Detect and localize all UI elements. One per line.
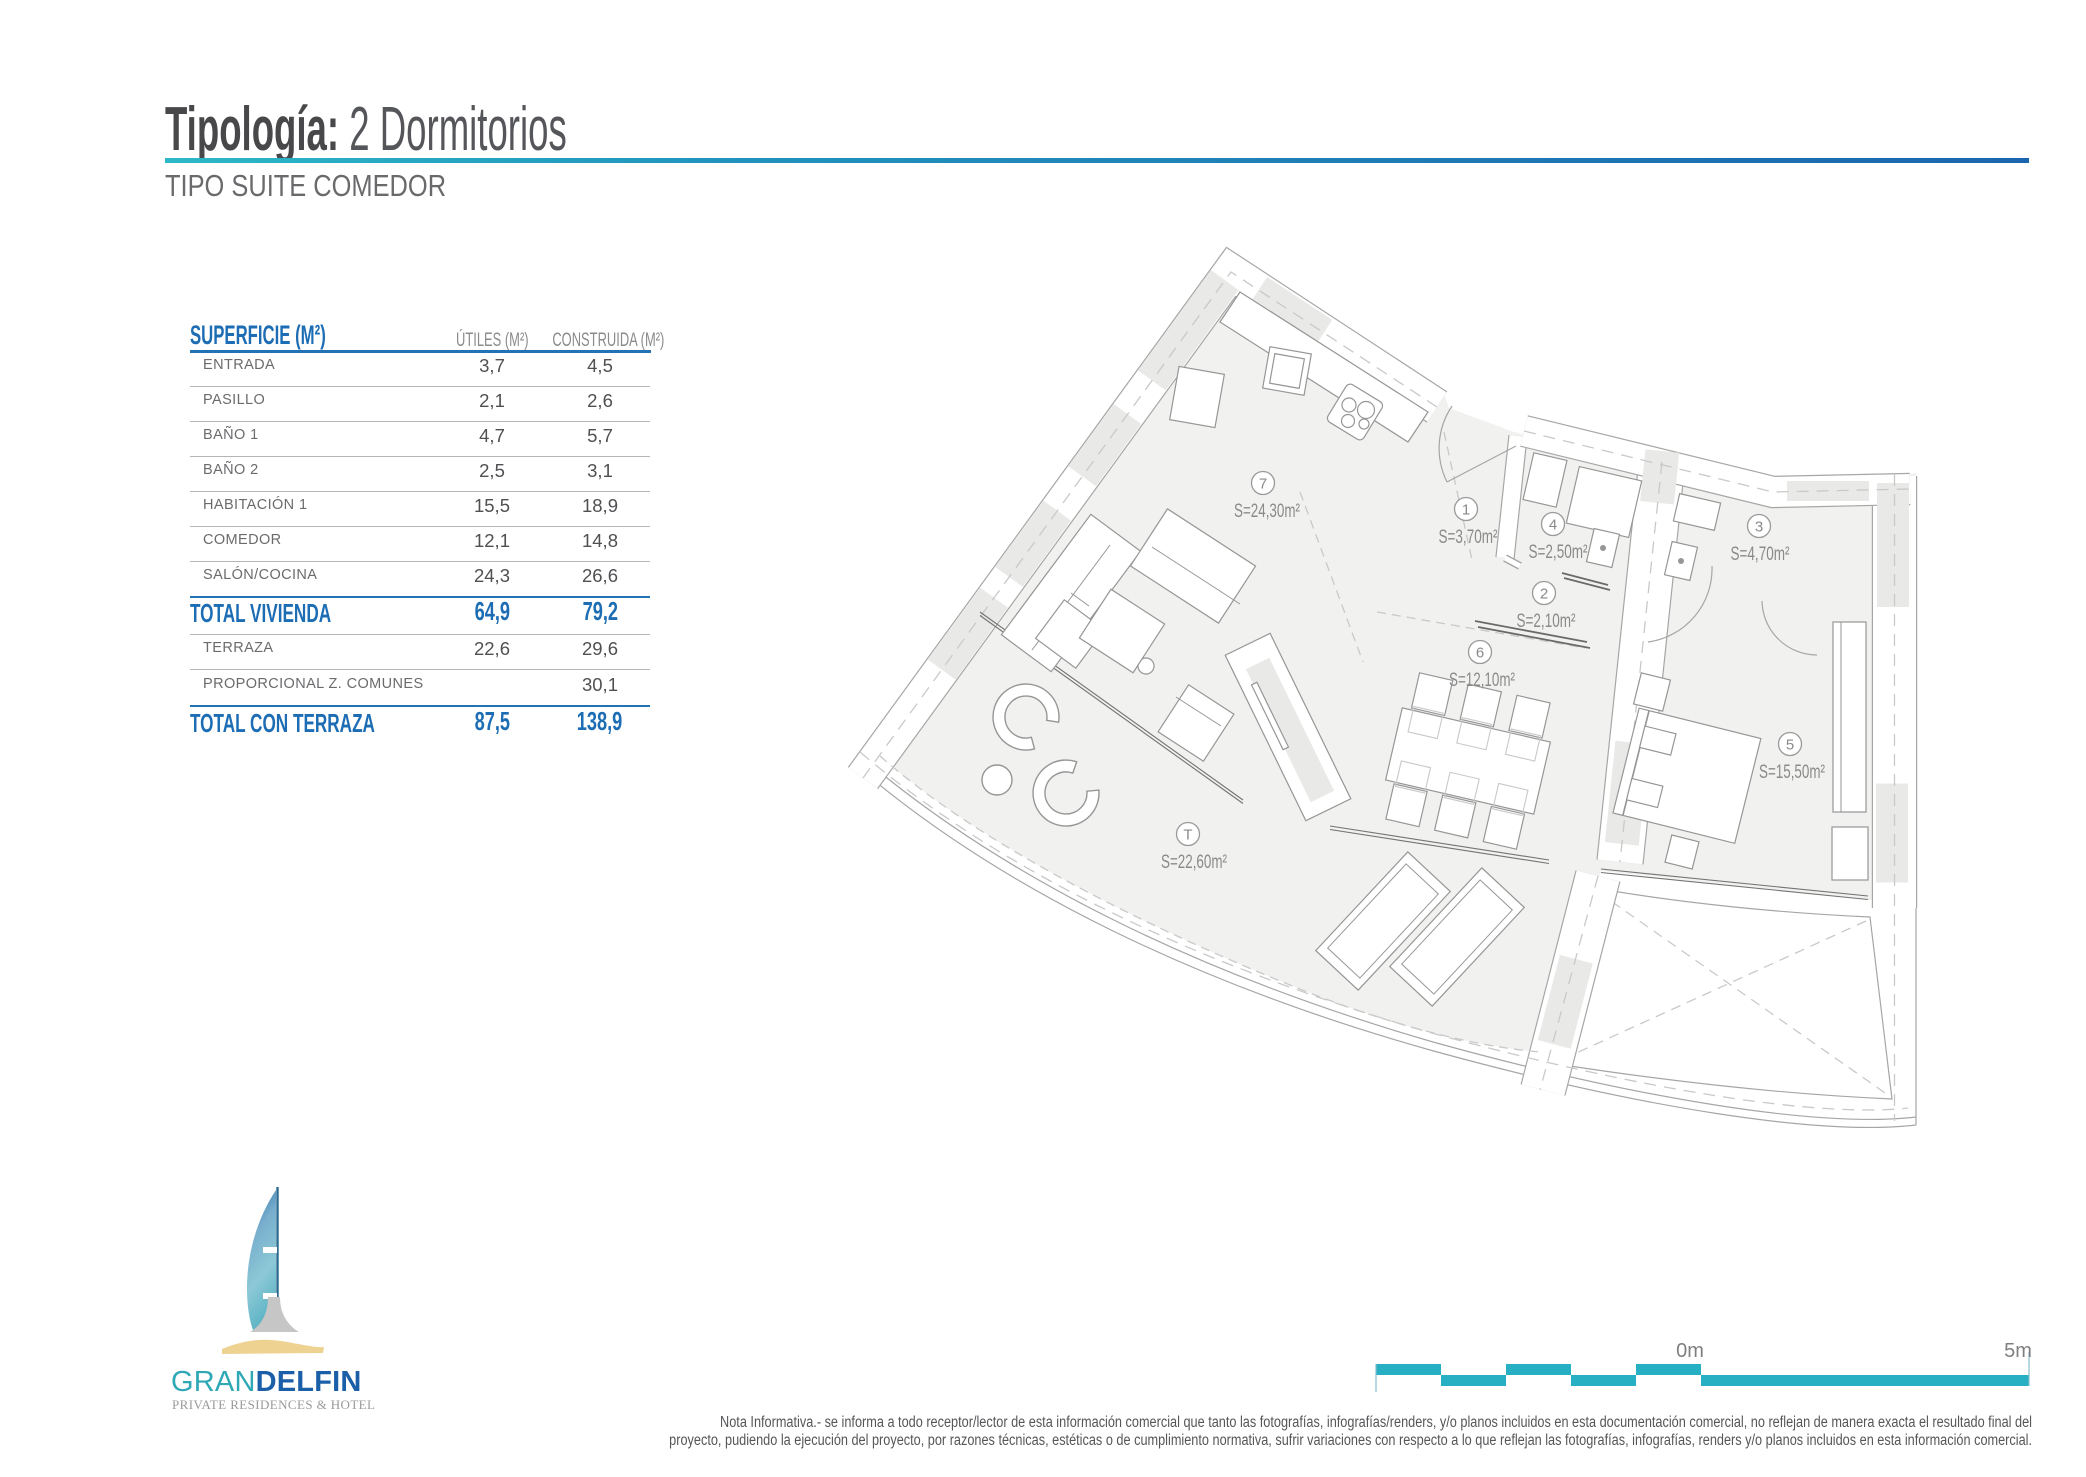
svg-text:6: 6 [1476,645,1484,662]
svg-text:S=12,10m²: S=12,10m² [1449,669,1515,691]
svg-text:S=22,60m²: S=22,60m² [1161,851,1227,873]
svg-text:3: 3 [1755,519,1763,536]
svg-text:4: 4 [1549,517,1557,534]
svg-text:S=2,10m²: S=2,10m² [1517,610,1576,632]
svg-text:PRIVATE RESIDENCES & HOTEL: PRIVATE RESIDENCES & HOTEL [172,1397,375,1412]
svg-text:2: 2 [1540,586,1548,603]
svg-text:5: 5 [1786,737,1794,754]
svg-text:S=24,30m²: S=24,30m² [1234,500,1300,522]
svg-text:0m: 0m [1676,1340,1704,1362]
svg-text:S=3,70m²: S=3,70m² [1439,526,1498,548]
svg-text:T: T [1183,827,1192,844]
svg-text:S=4,70m²: S=4,70m² [1731,543,1790,565]
svg-text:5m: 5m [2004,1340,2032,1362]
svg-text:7: 7 [1259,476,1267,493]
svg-text:1: 1 [1462,502,1470,519]
svg-text:S=15,50m²: S=15,50m² [1759,761,1825,783]
svg-text:GRANDELFIN: GRANDELFIN [171,1366,362,1398]
svg-text:S=2,50m²: S=2,50m² [1529,541,1588,563]
